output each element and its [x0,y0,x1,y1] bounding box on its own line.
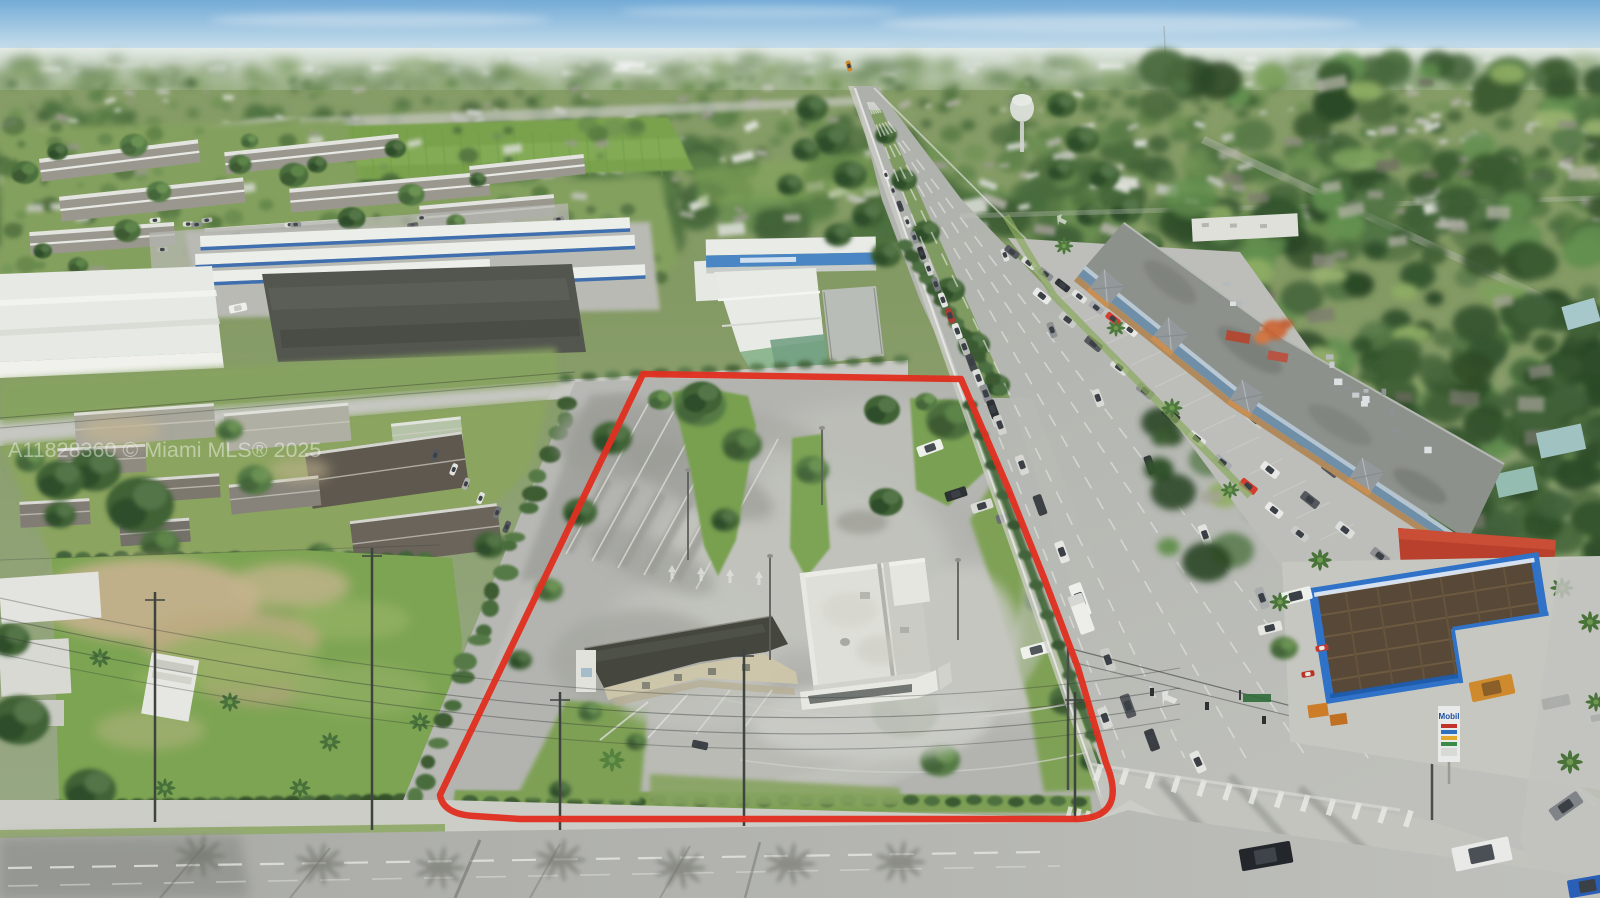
svg-text:Mobil: Mobil [1439,712,1460,721]
svg-text:A11828360 © Miami MLS® 2025: A11828360 © Miami MLS® 2025 [8,438,321,462]
